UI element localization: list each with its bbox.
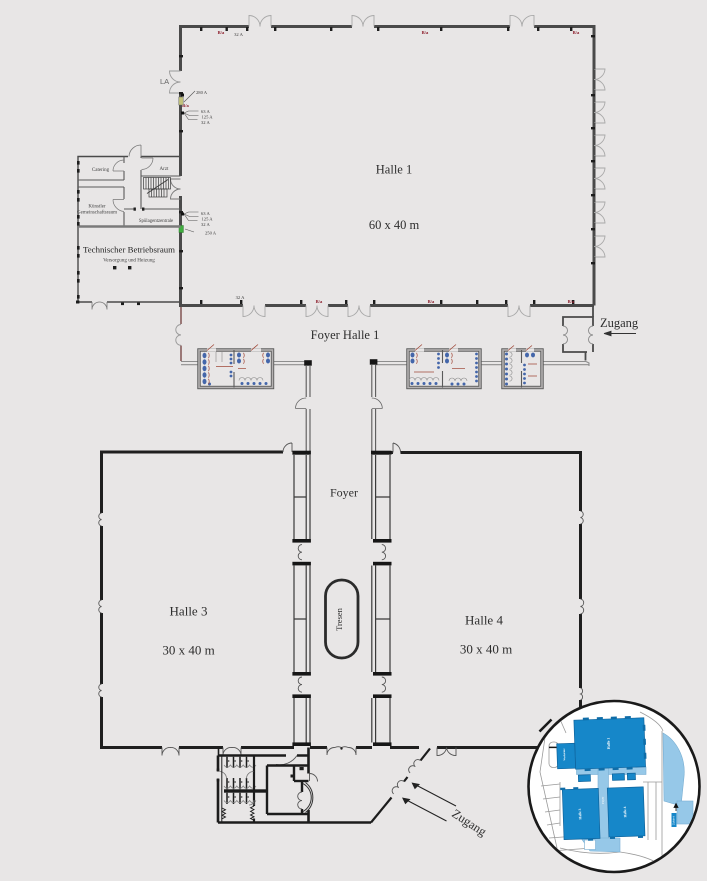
svg-text:Gemeinschaftsraum: Gemeinschaftsraum (77, 210, 117, 215)
svg-text:B/a: B/a (568, 299, 575, 304)
svg-text:125 A: 125 A (202, 115, 214, 120)
svg-text:60 x 40 m: 60 x 40 m (369, 218, 420, 232)
svg-text:32 A: 32 A (236, 295, 245, 300)
svg-text:Halle 3: Halle 3 (170, 603, 208, 618)
svg-text:32 A: 32 A (234, 32, 243, 37)
svg-text:Tresen: Tresen (334, 607, 344, 631)
svg-text:Künstler: Künstler (88, 204, 106, 209)
svg-text:32 A: 32 A (201, 222, 210, 227)
svg-text:B/a: B/a (573, 30, 580, 35)
svg-text:Zugang: Zugang (600, 316, 639, 330)
svg-text:Halle 3: Halle 3 (578, 808, 582, 819)
svg-text:Foyer: Foyer (330, 486, 358, 500)
svg-text:32 A: 32 A (201, 120, 210, 125)
svg-text:250 A: 250 A (205, 231, 217, 236)
svg-text:Halle 1: Halle 1 (607, 738, 611, 750)
svg-text:63 A: 63 A (201, 109, 210, 114)
svg-text:Versorgung und Heizung: Versorgung und Heizung (103, 258, 155, 264)
svg-text:Technischer Betriebsraum: Technischer Betriebsraum (83, 245, 175, 255)
svg-text:B/a: B/a (218, 30, 225, 35)
svg-text:Halle 4: Halle 4 (623, 806, 627, 817)
svg-text:Halle 4: Halle 4 (465, 613, 503, 628)
svg-text:Halle 1: Halle 1 (376, 163, 412, 177)
svg-text:B/a: B/a (316, 299, 323, 304)
svg-text:Werkstätte: Werkstätte (563, 748, 566, 761)
svg-text:Foyer: Foyer (602, 796, 605, 804)
svg-text:B/a: B/a (428, 299, 435, 304)
svg-text:30 x 40 m: 30 x 40 m (162, 642, 214, 657)
svg-text:LA: LA (160, 77, 169, 86)
svg-text:Arzt: Arzt (160, 167, 169, 172)
svg-text:30 x 40 m: 30 x 40 m (460, 641, 512, 656)
svg-text:Catering: Catering (92, 168, 110, 173)
svg-text:63 A: 63 A (201, 211, 210, 216)
svg-text:B/a: B/a (422, 30, 429, 35)
svg-text:Spülagentzentrale: Spülagentzentrale (139, 219, 173, 224)
svg-text:Zufahrt: Zufahrt (672, 816, 676, 825)
svg-text:280 A: 280 A (196, 90, 208, 95)
svg-text:Foyer Halle 1: Foyer Halle 1 (311, 328, 380, 342)
svg-text:125 A: 125 A (202, 217, 214, 222)
